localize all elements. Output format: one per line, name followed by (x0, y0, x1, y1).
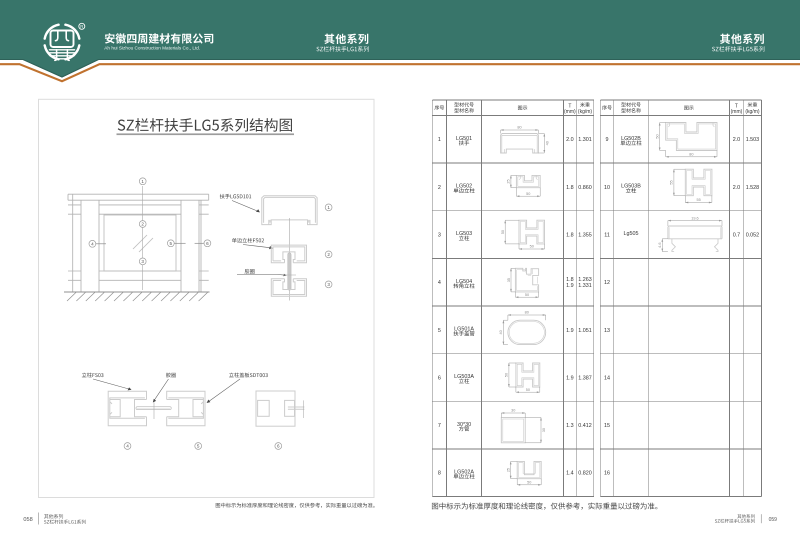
svg-text:6: 6 (206, 241, 209, 246)
svg-text:35: 35 (507, 278, 511, 282)
svg-text:8: 8 (438, 471, 441, 477)
svg-text:11: 11 (604, 233, 610, 239)
svg-text:1.301: 1.301 (578, 137, 592, 143)
svg-text:50: 50 (526, 192, 530, 196)
svg-text:25: 25 (507, 468, 511, 472)
svg-text:2: 2 (438, 185, 441, 191)
svg-text:50: 50 (505, 373, 509, 377)
svg-text:2.0: 2.0 (733, 185, 741, 191)
svg-text:30: 30 (542, 428, 546, 432)
svg-text:Lg505: Lg505 (624, 231, 639, 237)
svg-text:2.0: 2.0 (566, 137, 574, 143)
svg-text:10: 10 (604, 185, 610, 191)
svg-text:3: 3 (438, 233, 441, 239)
svg-text:1.9: 1.9 (566, 328, 574, 334)
svg-text:LG501: LG501 (456, 136, 472, 142)
svg-text:0.860: 0.860 (578, 185, 592, 191)
svg-text:1.4: 1.4 (566, 471, 574, 477)
svg-text:3: 3 (327, 282, 330, 287)
svg-text:50: 50 (656, 134, 660, 138)
svg-text:0.7: 0.7 (733, 233, 741, 239)
svg-text:50: 50 (501, 230, 505, 234)
svg-text:15: 15 (604, 423, 610, 429)
svg-text:1: 1 (438, 137, 441, 143)
svg-text:1.528: 1.528 (746, 185, 760, 191)
svg-text:1.503: 1.503 (746, 137, 760, 143)
svg-text:4: 4 (438, 280, 441, 286)
svg-text:50: 50 (530, 245, 534, 249)
svg-text:25: 25 (507, 179, 511, 183)
svg-text:0.052: 0.052 (746, 233, 760, 239)
svg-text:059: 059 (769, 517, 778, 523)
svg-text:30: 30 (511, 409, 515, 413)
svg-text:(kg/m): (kg/m) (578, 109, 593, 115)
svg-text:0.412: 0.412 (578, 423, 592, 429)
svg-text:40: 40 (499, 330, 503, 334)
svg-text:2.0: 2.0 (733, 137, 741, 143)
svg-text:80: 80 (689, 153, 693, 157)
svg-text:2: 2 (327, 252, 330, 257)
svg-text:1.8: 1.8 (566, 185, 574, 191)
svg-text:058: 058 (23, 517, 32, 523)
svg-text:9: 9 (606, 137, 609, 143)
svg-text:LG503A: LG503A (454, 374, 474, 380)
svg-text:1.9: 1.9 (566, 283, 574, 289)
svg-text:4.6: 4.6 (658, 243, 662, 248)
svg-text:1.8: 1.8 (566, 233, 574, 239)
svg-text:5: 5 (197, 444, 200, 449)
svg-text:6: 6 (277, 444, 280, 449)
svg-text:50: 50 (527, 481, 531, 485)
svg-text:1.051: 1.051 (578, 328, 592, 334)
svg-text:5: 5 (438, 328, 441, 334)
svg-text:LG502: LG502 (456, 184, 472, 190)
svg-text:16: 16 (604, 471, 610, 477)
svg-text:(mm): (mm) (564, 109, 576, 115)
svg-text:Ah hui Sizhou Construction Mat: Ah hui Sizhou Construction Materials Co.… (104, 45, 200, 50)
svg-text:LG503B: LG503B (621, 184, 641, 190)
svg-text:19.6: 19.6 (691, 216, 698, 220)
svg-text:80: 80 (525, 311, 529, 315)
svg-text:1.331: 1.331 (578, 283, 592, 289)
svg-text:1.355: 1.355 (578, 233, 592, 239)
svg-text:55: 55 (670, 180, 674, 184)
svg-text:14: 14 (604, 375, 610, 381)
svg-text:R: R (80, 24, 83, 29)
svg-text:5: 5 (170, 241, 173, 246)
svg-text:40: 40 (545, 141, 549, 145)
svg-text:13: 13 (604, 328, 610, 334)
svg-text:0.820: 0.820 (578, 471, 592, 477)
svg-text:12: 12 (604, 280, 610, 286)
svg-text:50: 50 (525, 293, 529, 297)
svg-text:4: 4 (91, 242, 94, 247)
svg-text:1.387: 1.387 (578, 375, 592, 381)
svg-text:(kg/m): (kg/m) (745, 109, 760, 115)
svg-text:6: 6 (438, 375, 441, 381)
svg-text:7: 7 (438, 423, 441, 429)
svg-text:1.3: 1.3 (566, 423, 574, 429)
svg-text:1: 1 (327, 205, 330, 210)
svg-text:1.9: 1.9 (566, 375, 574, 381)
svg-text:3: 3 (141, 259, 144, 264)
svg-text:LG504: LG504 (456, 279, 472, 285)
svg-text:80: 80 (517, 126, 521, 130)
svg-text:1: 1 (141, 179, 144, 184)
svg-text:4: 4 (126, 444, 129, 449)
svg-text:LG503: LG503 (456, 231, 472, 237)
svg-text:50: 50 (526, 388, 530, 392)
svg-text:2: 2 (141, 222, 144, 227)
svg-text:55: 55 (696, 198, 700, 202)
svg-text:(mm): (mm) (731, 109, 743, 115)
